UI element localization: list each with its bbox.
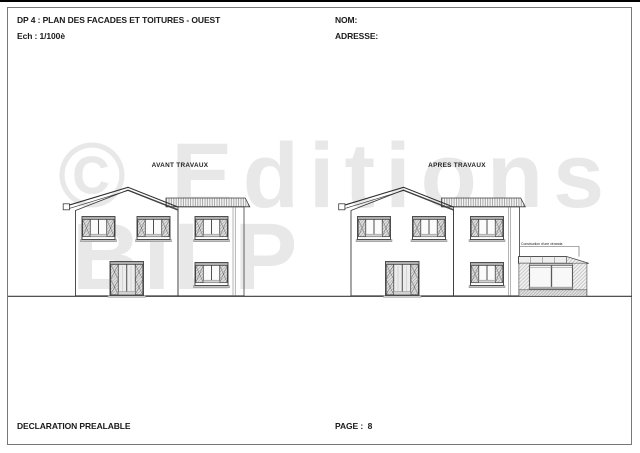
veranda-roof-slope [567,257,589,264]
caption-avant-travaux: AVANT TRAVAUX [80,162,280,169]
nom-label: NOM: [335,15,357,25]
scale-label: Ech : 1/100è [17,31,65,41]
footer-page-number: PAGE : 8 [335,421,372,431]
footer-doc-type: DECLARATION PREALABLE [17,421,130,431]
adresse-label: ADRESSE: [335,31,378,41]
veranda-annotation: Construction d'une véranda [521,242,562,246]
house-avant-drawing [63,187,250,297]
caption-apres-travaux: APRES TRAVAUX [357,162,557,169]
veranda-left-pilaster [519,263,530,290]
veranda-plinth [519,290,587,296]
veranda-right-pilaster [573,263,587,290]
elevation-drawings: Construction d'une véranda [0,0,640,453]
page-title: DP 4 : PLAN DES FACADES ET TOITURES - OU… [17,15,220,25]
veranda-drawing: Construction d'une véranda [519,242,589,296]
house-apres-drawing [339,187,526,297]
